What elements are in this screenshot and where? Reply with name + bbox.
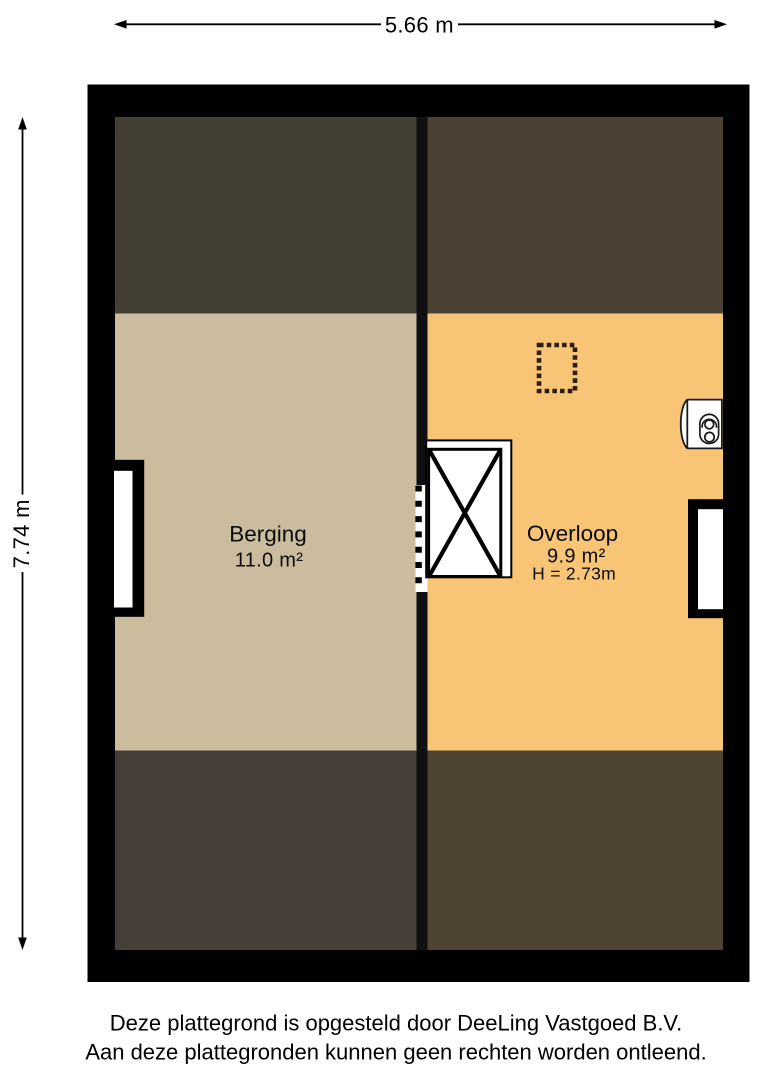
svg-text:5.66 m: 5.66 m [385, 13, 454, 38]
svg-text:7.74 m: 7.74 m [9, 499, 34, 568]
svg-text:Aan deze plattegronden kunnen: Aan deze plattegronden kunnen geen recht… [85, 1040, 706, 1065]
svg-text:Berging: Berging [229, 522, 307, 547]
svg-text:H = 2.73m: H = 2.73m [532, 563, 616, 583]
svg-text:11.0 m²: 11.0 m² [235, 550, 303, 572]
svg-text:Overloop: Overloop [527, 521, 618, 546]
svg-text:Deze plattegrond is opgesteld: Deze plattegrond is opgesteld door DeeLi… [110, 1011, 682, 1036]
